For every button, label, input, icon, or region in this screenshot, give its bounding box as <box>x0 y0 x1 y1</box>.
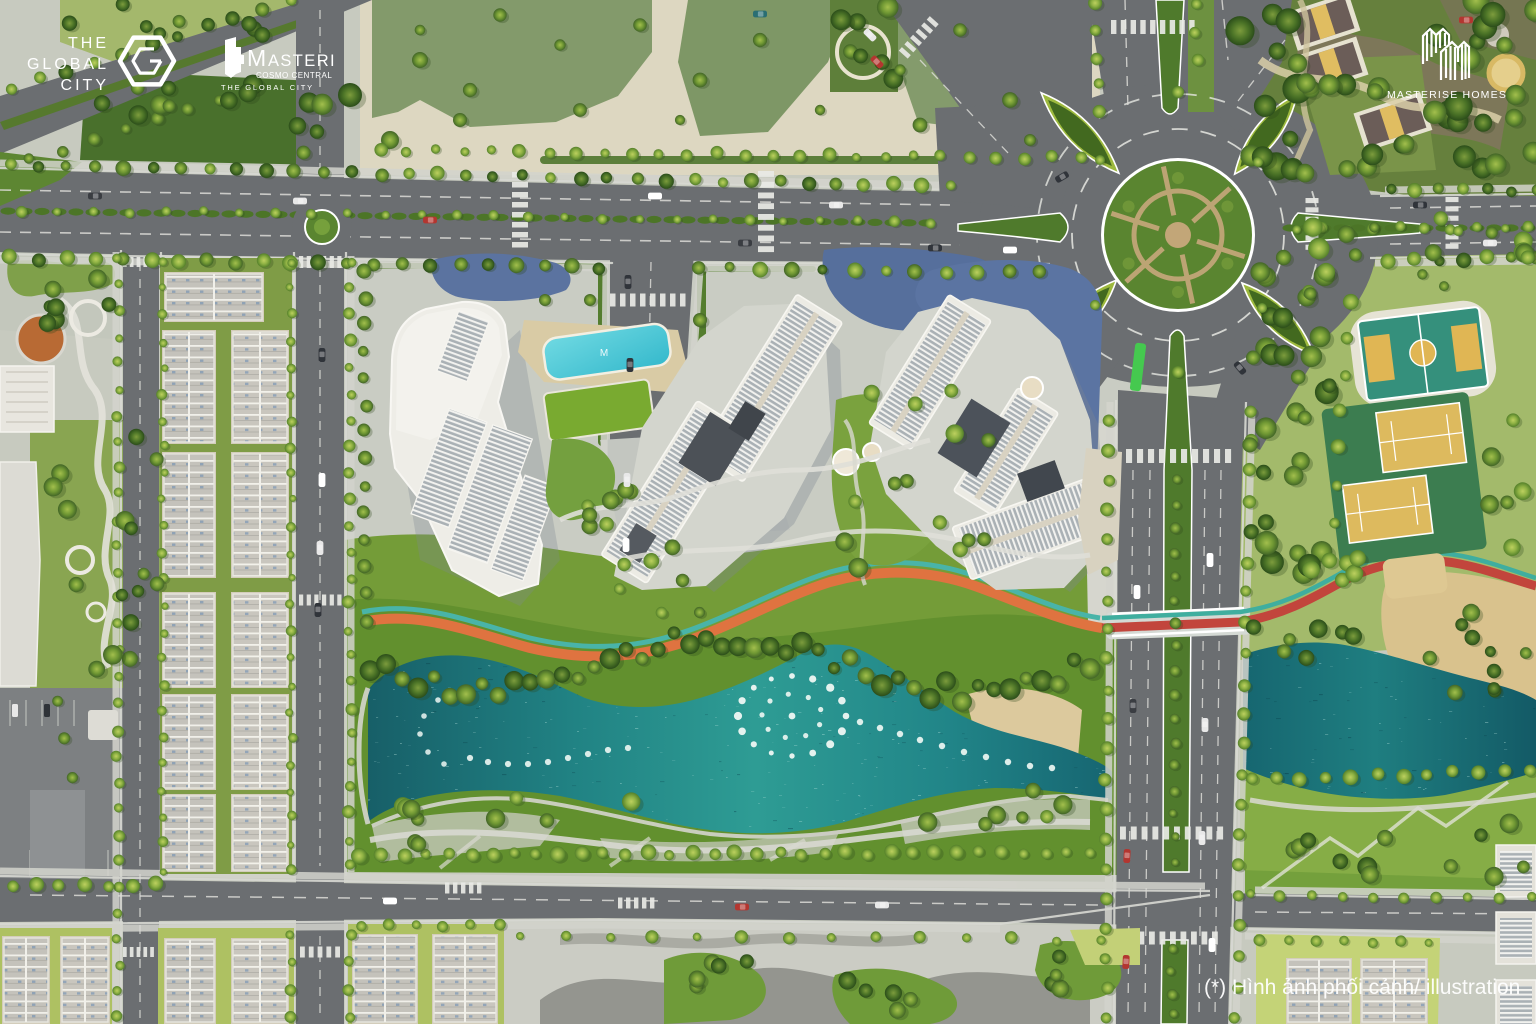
svg-text:THE: THE <box>68 35 109 52</box>
svg-text:THE GLOBAL CITY: THE GLOBAL CITY <box>221 83 314 92</box>
svg-text:GLOBAL: GLOBAL <box>27 56 109 73</box>
svg-text:(*) Hình ảnh phối cảnh/ illust: (*) Hình ảnh phối cảnh/ illustration <box>1204 976 1520 999</box>
svg-text:M: M <box>247 45 267 71</box>
svg-text:MASTERISE HOMES: MASTERISE HOMES <box>1387 89 1507 101</box>
svg-text:M: M <box>600 348 608 359</box>
svg-text:CITY: CITY <box>61 77 109 94</box>
svg-text:COSMO CENTRAL: COSMO CENTRAL <box>256 71 332 80</box>
svg-text:ASTERI: ASTERI <box>268 52 336 70</box>
